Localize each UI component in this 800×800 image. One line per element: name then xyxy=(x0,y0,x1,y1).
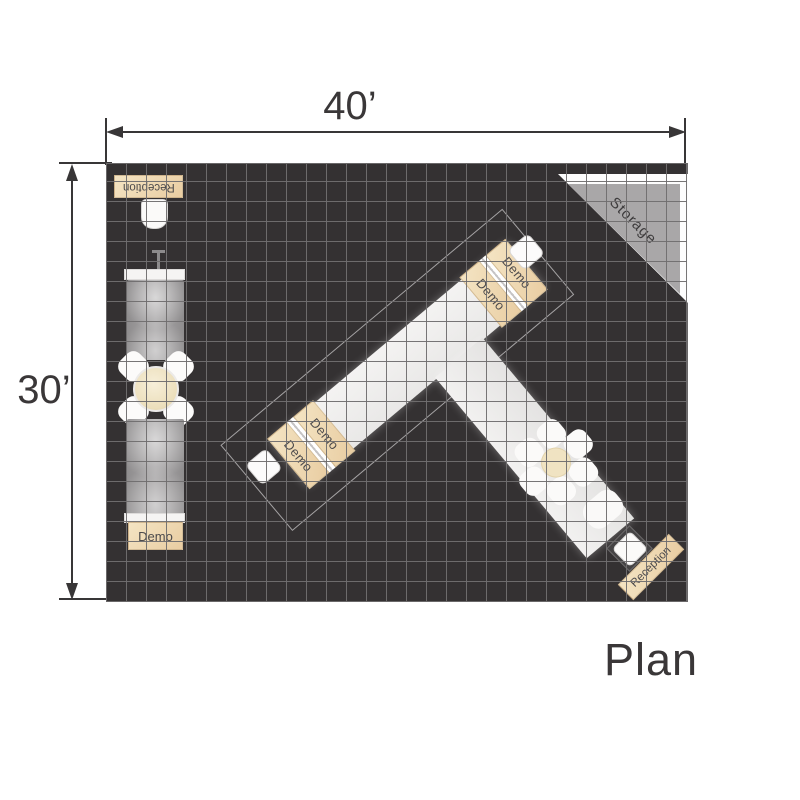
plan-title: Plan xyxy=(566,634,736,686)
demo-label: Demo xyxy=(138,529,173,544)
extension-tick xyxy=(105,118,107,165)
reception-desk-top-left: Reception xyxy=(114,175,183,198)
width-dimension-line xyxy=(120,131,672,133)
extension-tick xyxy=(59,598,112,600)
extension-tick xyxy=(59,162,112,164)
width-dimension-label: 40’ xyxy=(150,84,550,129)
tower-panel-bottom xyxy=(127,419,184,516)
height-dimension-line xyxy=(71,178,73,586)
extension-tick xyxy=(684,118,686,165)
arrowhead-left-icon xyxy=(106,126,123,138)
floor-plan-canvas: 40’ 30’ Reception Demo Storage xyxy=(0,0,800,800)
meeting-table xyxy=(133,366,179,412)
tower-top-cap xyxy=(124,269,185,280)
arrowhead-up-icon xyxy=(66,164,78,181)
chair xyxy=(141,199,168,229)
tower-pole-cap xyxy=(152,250,165,253)
tower-panel-top xyxy=(127,280,184,360)
reception-label: Reception xyxy=(123,181,175,193)
demo-counter-tower: Demo xyxy=(128,522,183,550)
booth-floor: Reception Demo Storage Demo xyxy=(106,163,688,602)
